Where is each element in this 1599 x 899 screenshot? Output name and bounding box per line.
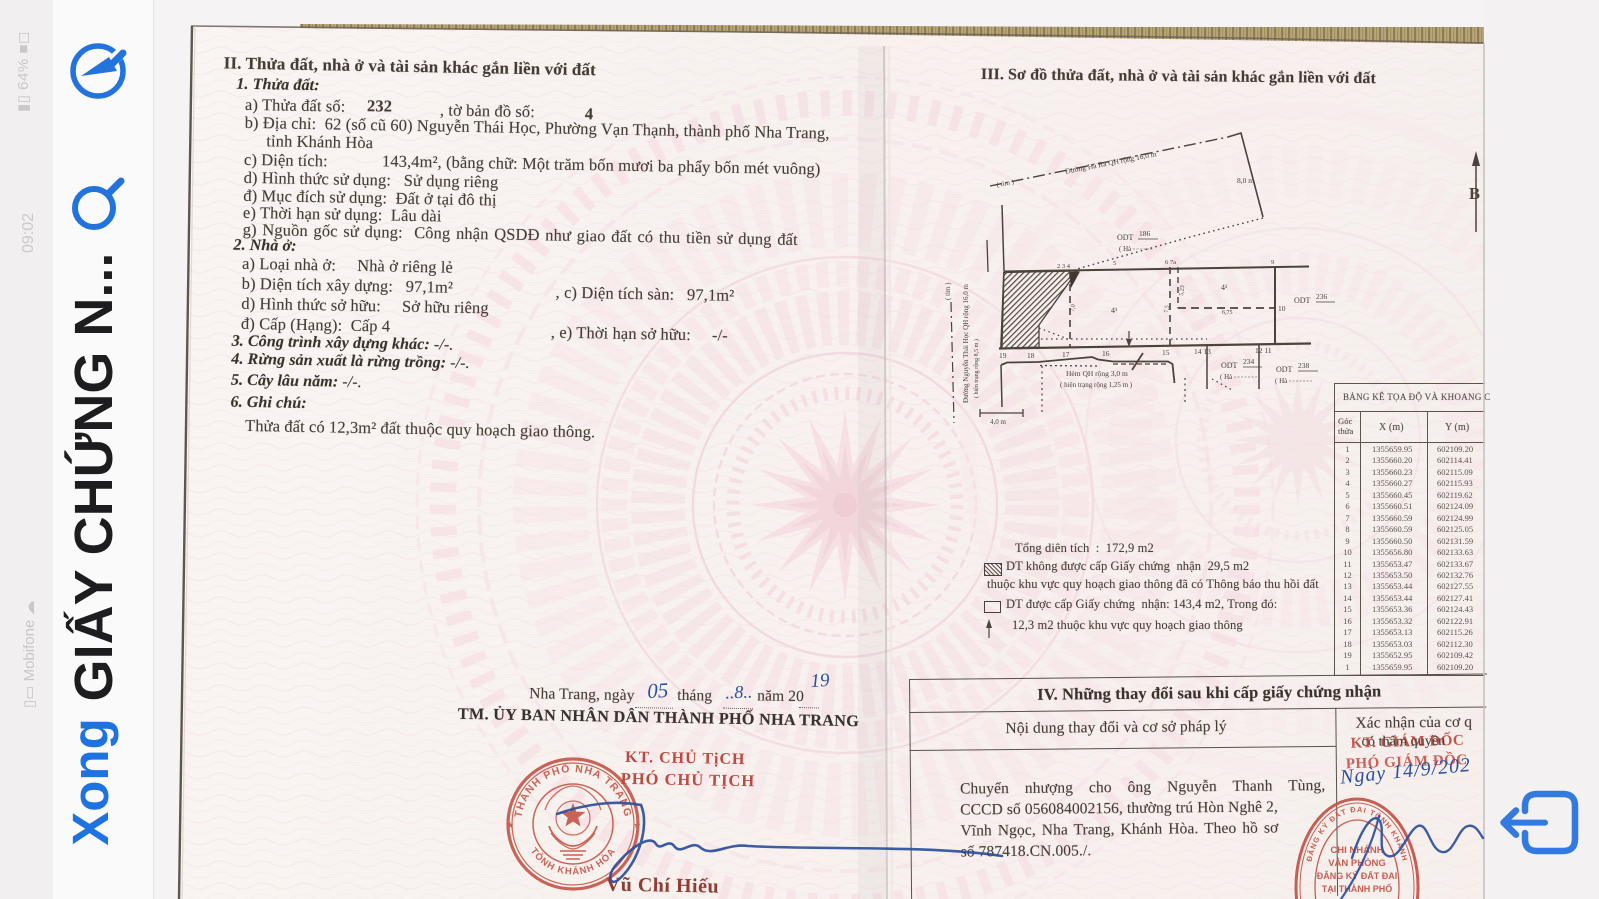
svg-text:ODT: ODT [1276,365,1293,374]
svg-text:12 11: 12 11 [1255,346,1272,355]
svg-text:Đường Hà Ra QH rộng 16,0 m: Đường Hà Ra QH rộng 16,0 m [1064,149,1157,176]
svg-text:236: 236 [1316,292,1328,301]
svg-text:234: 234 [1243,357,1255,366]
svg-text:19: 19 [999,351,1007,360]
svg-text:Hẻm QH rộng 3,0 m: Hẻm QH rộng 3,0 m [1066,369,1128,378]
svg-text:18: 18 [1027,351,1035,360]
svg-text:ODT: ODT [1221,361,1238,370]
svg-text:15: 15 [1162,348,1170,357]
svg-text:★: ★ [506,820,514,830]
svg-text:Đường Nguyễn Thái Học QH rộng: Đường Nguyễn Thái Học QH rộng 16,0 m [962,283,970,403]
svg-text:( hiện trạng rộng 8,5 m ): ( hiện trạng rộng 8,5 m ) [973,339,980,398]
svg-text:6,75: 6,75 [1222,310,1233,316]
svg-text:9: 9 [1271,259,1274,266]
svg-text:( tim ): ( tim ) [996,178,1015,189]
svg-text:7,5: 7,5 [1164,305,1171,313]
svg-text:14 13: 14 13 [1194,347,1211,356]
svg-text:★: ★ [633,820,641,830]
svg-text:4,0 m: 4,0 m [990,418,1007,426]
svg-text:186: 186 [1139,229,1151,238]
svg-text:4¹: 4¹ [1111,306,1118,315]
svg-text:7,0: 7,0 [1070,304,1077,312]
svg-text:10: 10 [1278,304,1286,313]
svg-text:( Hà: ( Hà [1119,245,1132,253]
svg-text:5,23: 5,23 [1179,285,1186,296]
svg-text:( Hà: ( Hà [1220,373,1233,381]
svg-text:TẠI THÀNH PHỐ: TẠI THÀNH PHỐ [1322,883,1393,894]
svg-text:6 7a: 6 7a [1165,259,1176,266]
svg-text:B: B [1469,184,1480,203]
svg-text:ODT: ODT [1117,233,1134,242]
svg-text:2 3 4: 2 3 4 [1057,263,1071,270]
svg-text:238: 238 [1298,361,1310,370]
svg-text:8,0 m: 8,0 m [1237,176,1254,185]
svg-text:5: 5 [1113,260,1116,267]
svg-text:VĂN PHÒNG: VĂN PHÒNG [1328,857,1386,869]
svg-text:( Hà: ( Hà [1275,377,1288,385]
svg-text:( tim ): ( tim ) [944,282,952,300]
svg-text:4¹: 4¹ [1221,283,1228,292]
svg-text:17: 17 [1062,350,1070,359]
svg-text:ODT: ODT [1294,296,1311,305]
svg-text:( hiện trạng rộng 1,25 m ): ( hiện trạng rộng 1,25 m ) [1060,381,1133,389]
svg-text:16: 16 [1102,349,1110,358]
